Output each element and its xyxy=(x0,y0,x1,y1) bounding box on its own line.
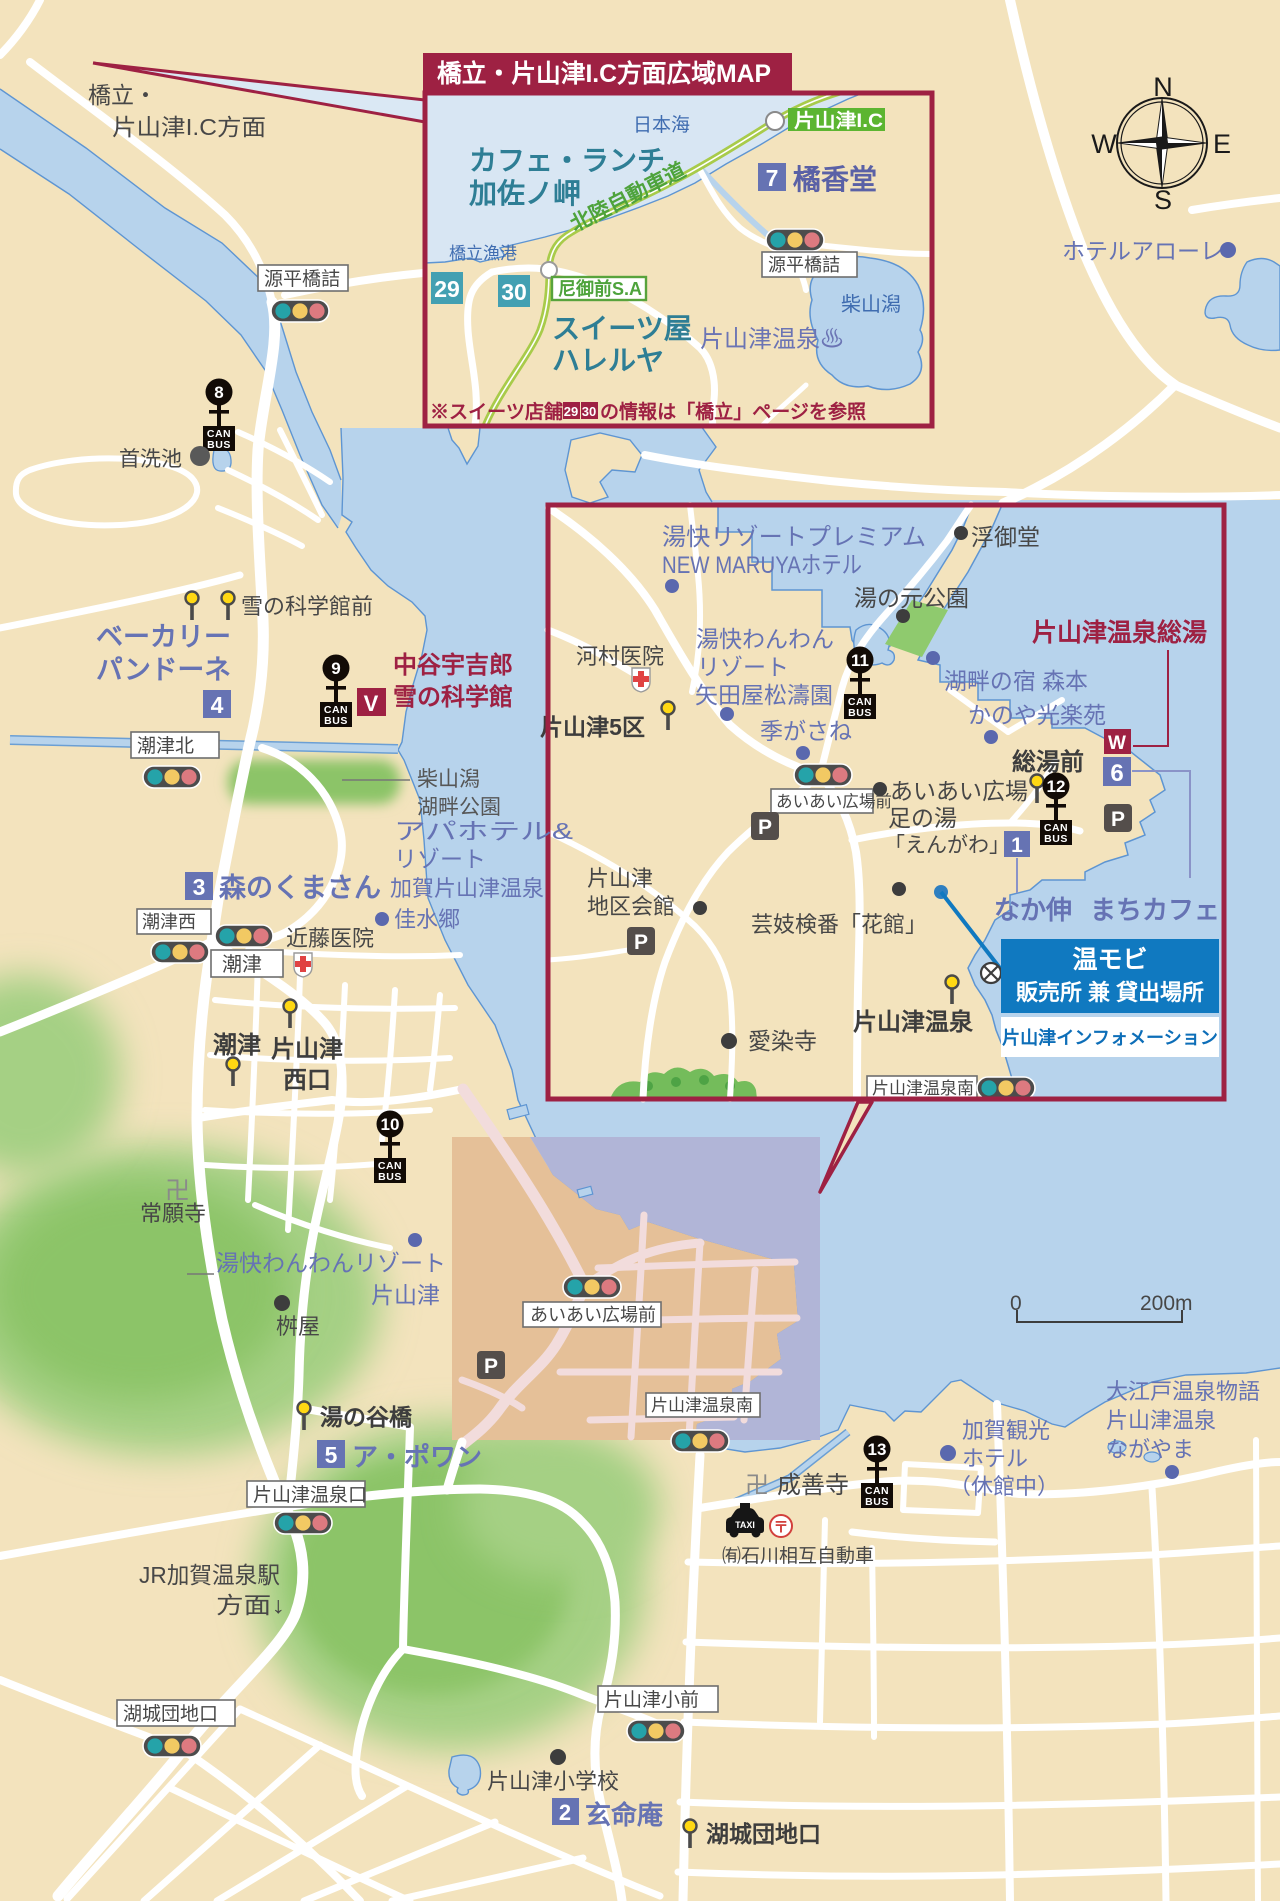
svg-text:湖畔の宿 森本: 湖畔の宿 森本 xyxy=(944,668,1088,694)
svg-text:4: 4 xyxy=(211,692,224,718)
svg-text:N: N xyxy=(1153,72,1173,102)
svg-text:※スイーツ店舗: ※スイーツ店舗 xyxy=(430,400,563,423)
svg-text:雪の科学館前: 雪の科学館前 xyxy=(241,594,373,619)
svg-text:西口: 西口 xyxy=(283,1067,331,1094)
svg-text:足の湯: 足の湯 xyxy=(888,805,957,831)
svg-text:片山津温泉♨: 片山津温泉♨ xyxy=(700,326,844,353)
svg-text:8: 8 xyxy=(214,383,223,402)
svg-text:季がさね: 季がさね xyxy=(760,718,852,744)
svg-text:W: W xyxy=(1108,733,1126,754)
svg-text:湖畔公園: 湖畔公園 xyxy=(417,796,501,819)
svg-text:W: W xyxy=(1091,129,1117,159)
svg-text:まちカフェ: まちカフェ xyxy=(1090,895,1220,925)
svg-text:日本海: 日本海 xyxy=(633,114,690,136)
svg-text:雪の科学館: 雪の科学館 xyxy=(393,683,513,711)
svg-text:湖城団地口: 湖城団地口 xyxy=(123,1703,218,1725)
svg-text:片山津: 片山津 xyxy=(271,1036,343,1063)
svg-text:矢田屋松濤園: 矢田屋松濤園 xyxy=(695,682,833,708)
svg-text:湖城団地口: 湖城団地口 xyxy=(706,1821,821,1847)
svg-text:㈲石川相互自動車: ㈲石川相互自動車 xyxy=(722,1545,874,1567)
svg-text:ホテルアローレ: ホテルアローレ xyxy=(1062,238,1223,264)
svg-text:TAXI: TAXI xyxy=(735,1520,755,1530)
svg-text:森のくまさん: 森のくまさん xyxy=(219,873,381,903)
svg-text:中谷宇吉郎: 中谷宇吉郎 xyxy=(393,651,513,679)
svg-text:ア・ポワン: ア・ポワン xyxy=(352,1442,482,1472)
svg-text:橘香堂: 橘香堂 xyxy=(793,164,877,195)
svg-text:成善寺: 成善寺 xyxy=(777,1472,849,1499)
svg-text:湯快わんわんリゾート: 湯快わんわんリゾート xyxy=(216,1250,446,1276)
svg-text:3: 3 xyxy=(193,874,206,900)
svg-text:販売所 兼 貸出場所: 販売所 兼 貸出場所 xyxy=(1016,980,1204,1005)
svg-text:10: 10 xyxy=(381,1115,400,1134)
svg-text:ハレルヤ: ハレルヤ xyxy=(552,345,664,376)
svg-text:潮津: 潮津 xyxy=(213,1032,261,1059)
svg-text:片山津小前: 片山津小前 xyxy=(604,1689,699,1711)
svg-text:29: 29 xyxy=(434,276,460,302)
svg-text:芸妓検番「花館」: 芸妓検番「花館」 xyxy=(751,912,927,937)
svg-text:NEW MARUYAホテル: NEW MARUYAホテル xyxy=(662,552,862,579)
svg-text:カフェ・ランチ: カフェ・ランチ xyxy=(469,145,665,176)
svg-text:なか伸: なか伸 xyxy=(994,895,1072,925)
svg-text:片山津温泉: 片山津温泉 xyxy=(1106,1408,1216,1433)
svg-text:V: V xyxy=(364,691,379,716)
svg-text:温モビ: 温モビ xyxy=(1073,946,1148,974)
svg-text:6: 6 xyxy=(1110,760,1123,787)
svg-text:リゾート: リゾート xyxy=(394,846,486,872)
svg-text:片山津温泉南: 片山津温泉南 xyxy=(651,1396,753,1415)
svg-text:卍: 卍 xyxy=(745,1472,769,1499)
svg-text:30: 30 xyxy=(501,279,527,305)
svg-text:かのや光楽苑: かのや光楽苑 xyxy=(968,702,1106,728)
svg-text:佳水郷: 佳水郷 xyxy=(394,907,460,932)
svg-text:加佐ノ岬: 加佐ノ岬 xyxy=(469,178,581,209)
svg-text:片山津温泉南: 片山津温泉南 xyxy=(872,1079,974,1098)
svg-text:「えんがわ」: 「えんがわ」 xyxy=(884,834,1010,857)
svg-text:ながやま: ながやま xyxy=(1106,1437,1194,1462)
svg-text:橋立・: 橋立・ xyxy=(88,82,157,108)
svg-text:玄命庵: 玄命庵 xyxy=(585,1800,664,1830)
svg-text:リゾート: リゾート xyxy=(697,654,789,680)
svg-text:S: S xyxy=(1154,185,1172,215)
svg-text:29: 29 xyxy=(564,404,578,419)
svg-text:片山津小学校: 片山津小学校 xyxy=(487,1769,619,1794)
svg-text:片山津温泉: 片山津温泉 xyxy=(853,1008,974,1036)
svg-text:（休館中）: （休館中） xyxy=(949,1474,1059,1499)
svg-text:湯の谷橋: 湯の谷橋 xyxy=(320,1404,413,1430)
svg-text:総湯前: 総湯前 xyxy=(1012,748,1084,776)
svg-text:あいあい広場前: あいあい広場前 xyxy=(530,1305,656,1325)
svg-text:200m: 200m xyxy=(1140,1292,1193,1315)
svg-text:ベーカリー: ベーカリー xyxy=(96,622,231,652)
svg-text:あいあい広場前: あいあい広場前 xyxy=(776,792,892,811)
svg-text:片山津インフォメーション: 片山津インフォメーション xyxy=(1002,1027,1218,1048)
svg-text:湯快リゾートプレミアム: 湯快リゾートプレミアム xyxy=(662,524,926,551)
svg-text:尼御前S.A: 尼御前S.A xyxy=(558,278,642,299)
svg-text:源平橋詰: 源平橋詰 xyxy=(264,268,340,290)
svg-text:片山津5区: 片山津5区 xyxy=(540,714,645,740)
svg-text:大江戸温泉物語: 大江戸温泉物語 xyxy=(1106,1379,1260,1404)
svg-text:湯快わんわん: 湯快わんわん xyxy=(696,626,834,652)
svg-text:0: 0 xyxy=(1010,1292,1022,1315)
svg-text:柴山潟: 柴山潟 xyxy=(841,293,901,316)
svg-text:潮津: 潮津 xyxy=(222,953,262,976)
svg-text:源平橋詰: 源平橋詰 xyxy=(768,255,840,275)
svg-text:片山津: 片山津 xyxy=(371,1282,440,1308)
svg-text:方面↓: 方面↓ xyxy=(216,1592,285,1618)
svg-text:〒: 〒 xyxy=(774,1519,789,1536)
svg-text:1: 1 xyxy=(1011,834,1023,857)
svg-text:ホテル: ホテル xyxy=(962,1446,1028,1471)
svg-text:片山津温泉口: 片山津温泉口 xyxy=(253,1484,367,1506)
svg-text:常願寺: 常願寺 xyxy=(140,1201,206,1226)
svg-text:5: 5 xyxy=(325,1442,338,1468)
svg-text:湯の元公園: 湯の元公園 xyxy=(854,585,969,611)
svg-text:橋立・片山津I.C方面広域MAP: 橋立・片山津I.C方面広域MAP xyxy=(437,59,771,88)
svg-text:9: 9 xyxy=(331,659,340,678)
svg-text:愛染寺: 愛染寺 xyxy=(748,1028,817,1054)
svg-text:12: 12 xyxy=(1047,777,1066,796)
svg-text:潮津北: 潮津北 xyxy=(137,735,194,757)
svg-text:河村医院: 河村医院 xyxy=(576,644,664,669)
svg-text:首洗池: 首洗池 xyxy=(119,448,182,471)
svg-text:アパホテル&: アパホテル& xyxy=(394,818,573,844)
svg-text:桝屋: 桝屋 xyxy=(276,1314,320,1339)
svg-text:加賀片山津温泉: 加賀片山津温泉 xyxy=(390,876,544,901)
svg-text:30: 30 xyxy=(582,404,596,419)
svg-text:E: E xyxy=(1213,129,1231,159)
svg-text:潮津西: 潮津西 xyxy=(142,912,196,932)
svg-text:浮御堂: 浮御堂 xyxy=(971,524,1040,550)
svg-text:スイーツ屋: スイーツ屋 xyxy=(552,313,692,344)
svg-text:の情報は「橋立」ページを参照: の情報は「橋立」ページを参照 xyxy=(600,400,866,423)
svg-text:2: 2 xyxy=(559,1800,571,1825)
svg-text:橋立漁港: 橋立漁港 xyxy=(449,244,517,263)
svg-text:片山津I.C方面: 片山津I.C方面 xyxy=(112,114,266,140)
svg-text:地区会館: 地区会館 xyxy=(587,894,675,919)
svg-text:片山津温泉総湯: 片山津温泉総湯 xyxy=(1032,618,1207,647)
svg-text:パンドーネ: パンドーネ xyxy=(96,655,231,685)
svg-text:片山津: 片山津 xyxy=(587,866,653,891)
svg-text:13: 13 xyxy=(868,1440,887,1459)
svg-text:JR加賀温泉駅: JR加賀温泉駅 xyxy=(139,1562,280,1588)
svg-text:柴山潟: 柴山潟 xyxy=(417,768,480,791)
svg-text:加賀観光: 加賀観光 xyxy=(962,1418,1050,1443)
svg-text:片山津I.C: 片山津I.C xyxy=(794,109,883,132)
svg-text:近藤医院: 近藤医院 xyxy=(286,926,374,951)
svg-text:11: 11 xyxy=(851,651,869,670)
svg-text:あいあい広場: あいあい広場 xyxy=(890,778,1028,804)
svg-text:7: 7 xyxy=(766,165,779,191)
